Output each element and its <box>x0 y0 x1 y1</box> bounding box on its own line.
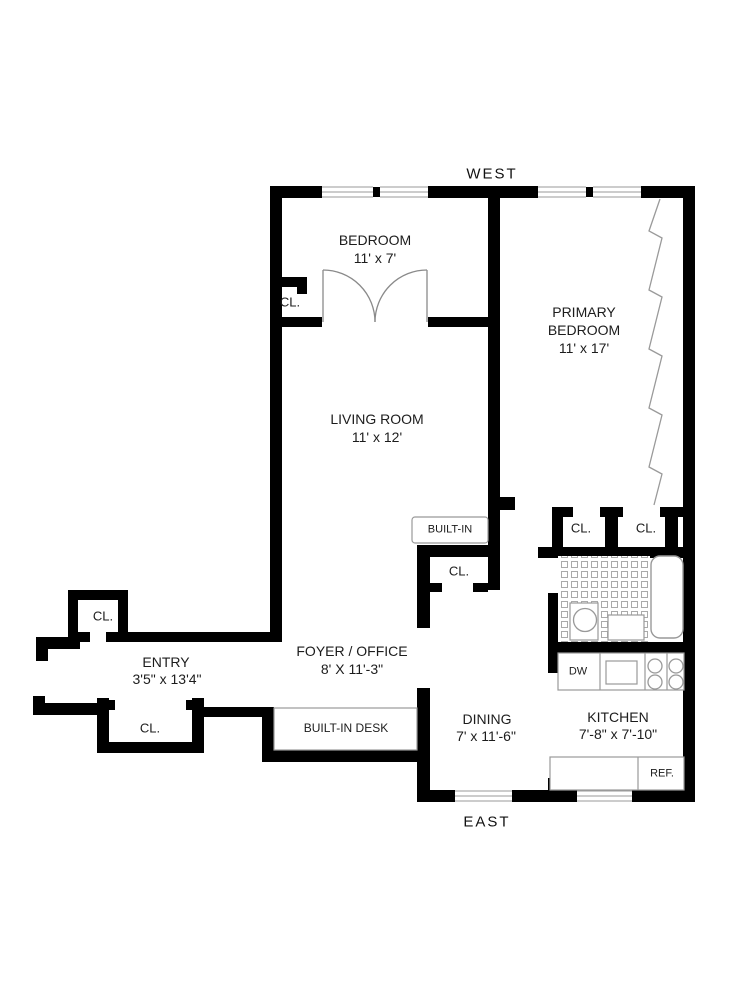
primary-closet-right-label: CL. <box>636 522 656 535</box>
entry-upper-closet-label: CL. <box>93 610 113 623</box>
kitchen-dimensions: 7'-8" x 7'-10" <box>579 727 657 741</box>
living-room-label: LIVING ROOM <box>330 412 423 426</box>
closet-zigzag-icon <box>649 199 662 505</box>
primary-bedroom-dimensions: 11' x 17' <box>559 341 609 355</box>
window-icon <box>577 790 632 802</box>
kitchen-label: KITCHEN <box>587 710 648 724</box>
compass-east-label: EAST <box>463 815 510 830</box>
dining-dimensions: 7' x 11'-6" <box>456 729 516 743</box>
foyer-office-dimensions: 8' X 11'-3" <box>321 662 383 676</box>
entry-lower-closet-label: CL. <box>140 722 160 735</box>
compass-west-label: WEST <box>466 167 517 182</box>
door-swing-icon <box>323 270 427 322</box>
living-room-dimensions: 11' x 12' <box>352 430 402 444</box>
floor-plan: WEST EAST BEDROOM 11' x 7' PRIMARY BEDRO… <box>0 0 750 1000</box>
window-icon <box>593 186 641 198</box>
kitchen-sink-icon <box>606 661 637 684</box>
bathtub-icon <box>651 556 683 638</box>
pedestal-sink-icon <box>574 609 597 632</box>
toilet-icon <box>608 615 644 640</box>
window-icon <box>455 790 512 802</box>
fixtures-layer <box>0 0 750 1000</box>
dining-label: DINING <box>463 712 512 726</box>
primary-closet-left-label: CL. <box>571 522 591 535</box>
entry-dimensions: 3'5" x 13'4" <box>133 672 202 686</box>
dishwasher-label: DW <box>569 667 587 678</box>
bedroom-label: BEDROOM <box>339 233 411 247</box>
bedroom-closet-label: CL. <box>280 296 300 309</box>
foyer-office-label: FOYER / OFFICE <box>296 644 407 658</box>
bedroom-dimensions: 11' x 7' <box>354 251 396 265</box>
entry-label: ENTRY <box>142 655 189 669</box>
window-icon <box>538 186 586 198</box>
built-in-desk-label: BUILT-IN DESK <box>304 722 388 734</box>
window-icon <box>380 186 428 198</box>
window-icon <box>322 186 373 198</box>
refrigerator-label: REF. <box>650 769 674 780</box>
built-in-label: BUILT-IN <box>428 525 472 536</box>
primary-bedroom-label-line2: BEDROOM <box>548 323 620 337</box>
primary-bedroom-label-line1: PRIMARY <box>552 305 616 319</box>
foyer-closet-label: CL. <box>449 565 469 578</box>
